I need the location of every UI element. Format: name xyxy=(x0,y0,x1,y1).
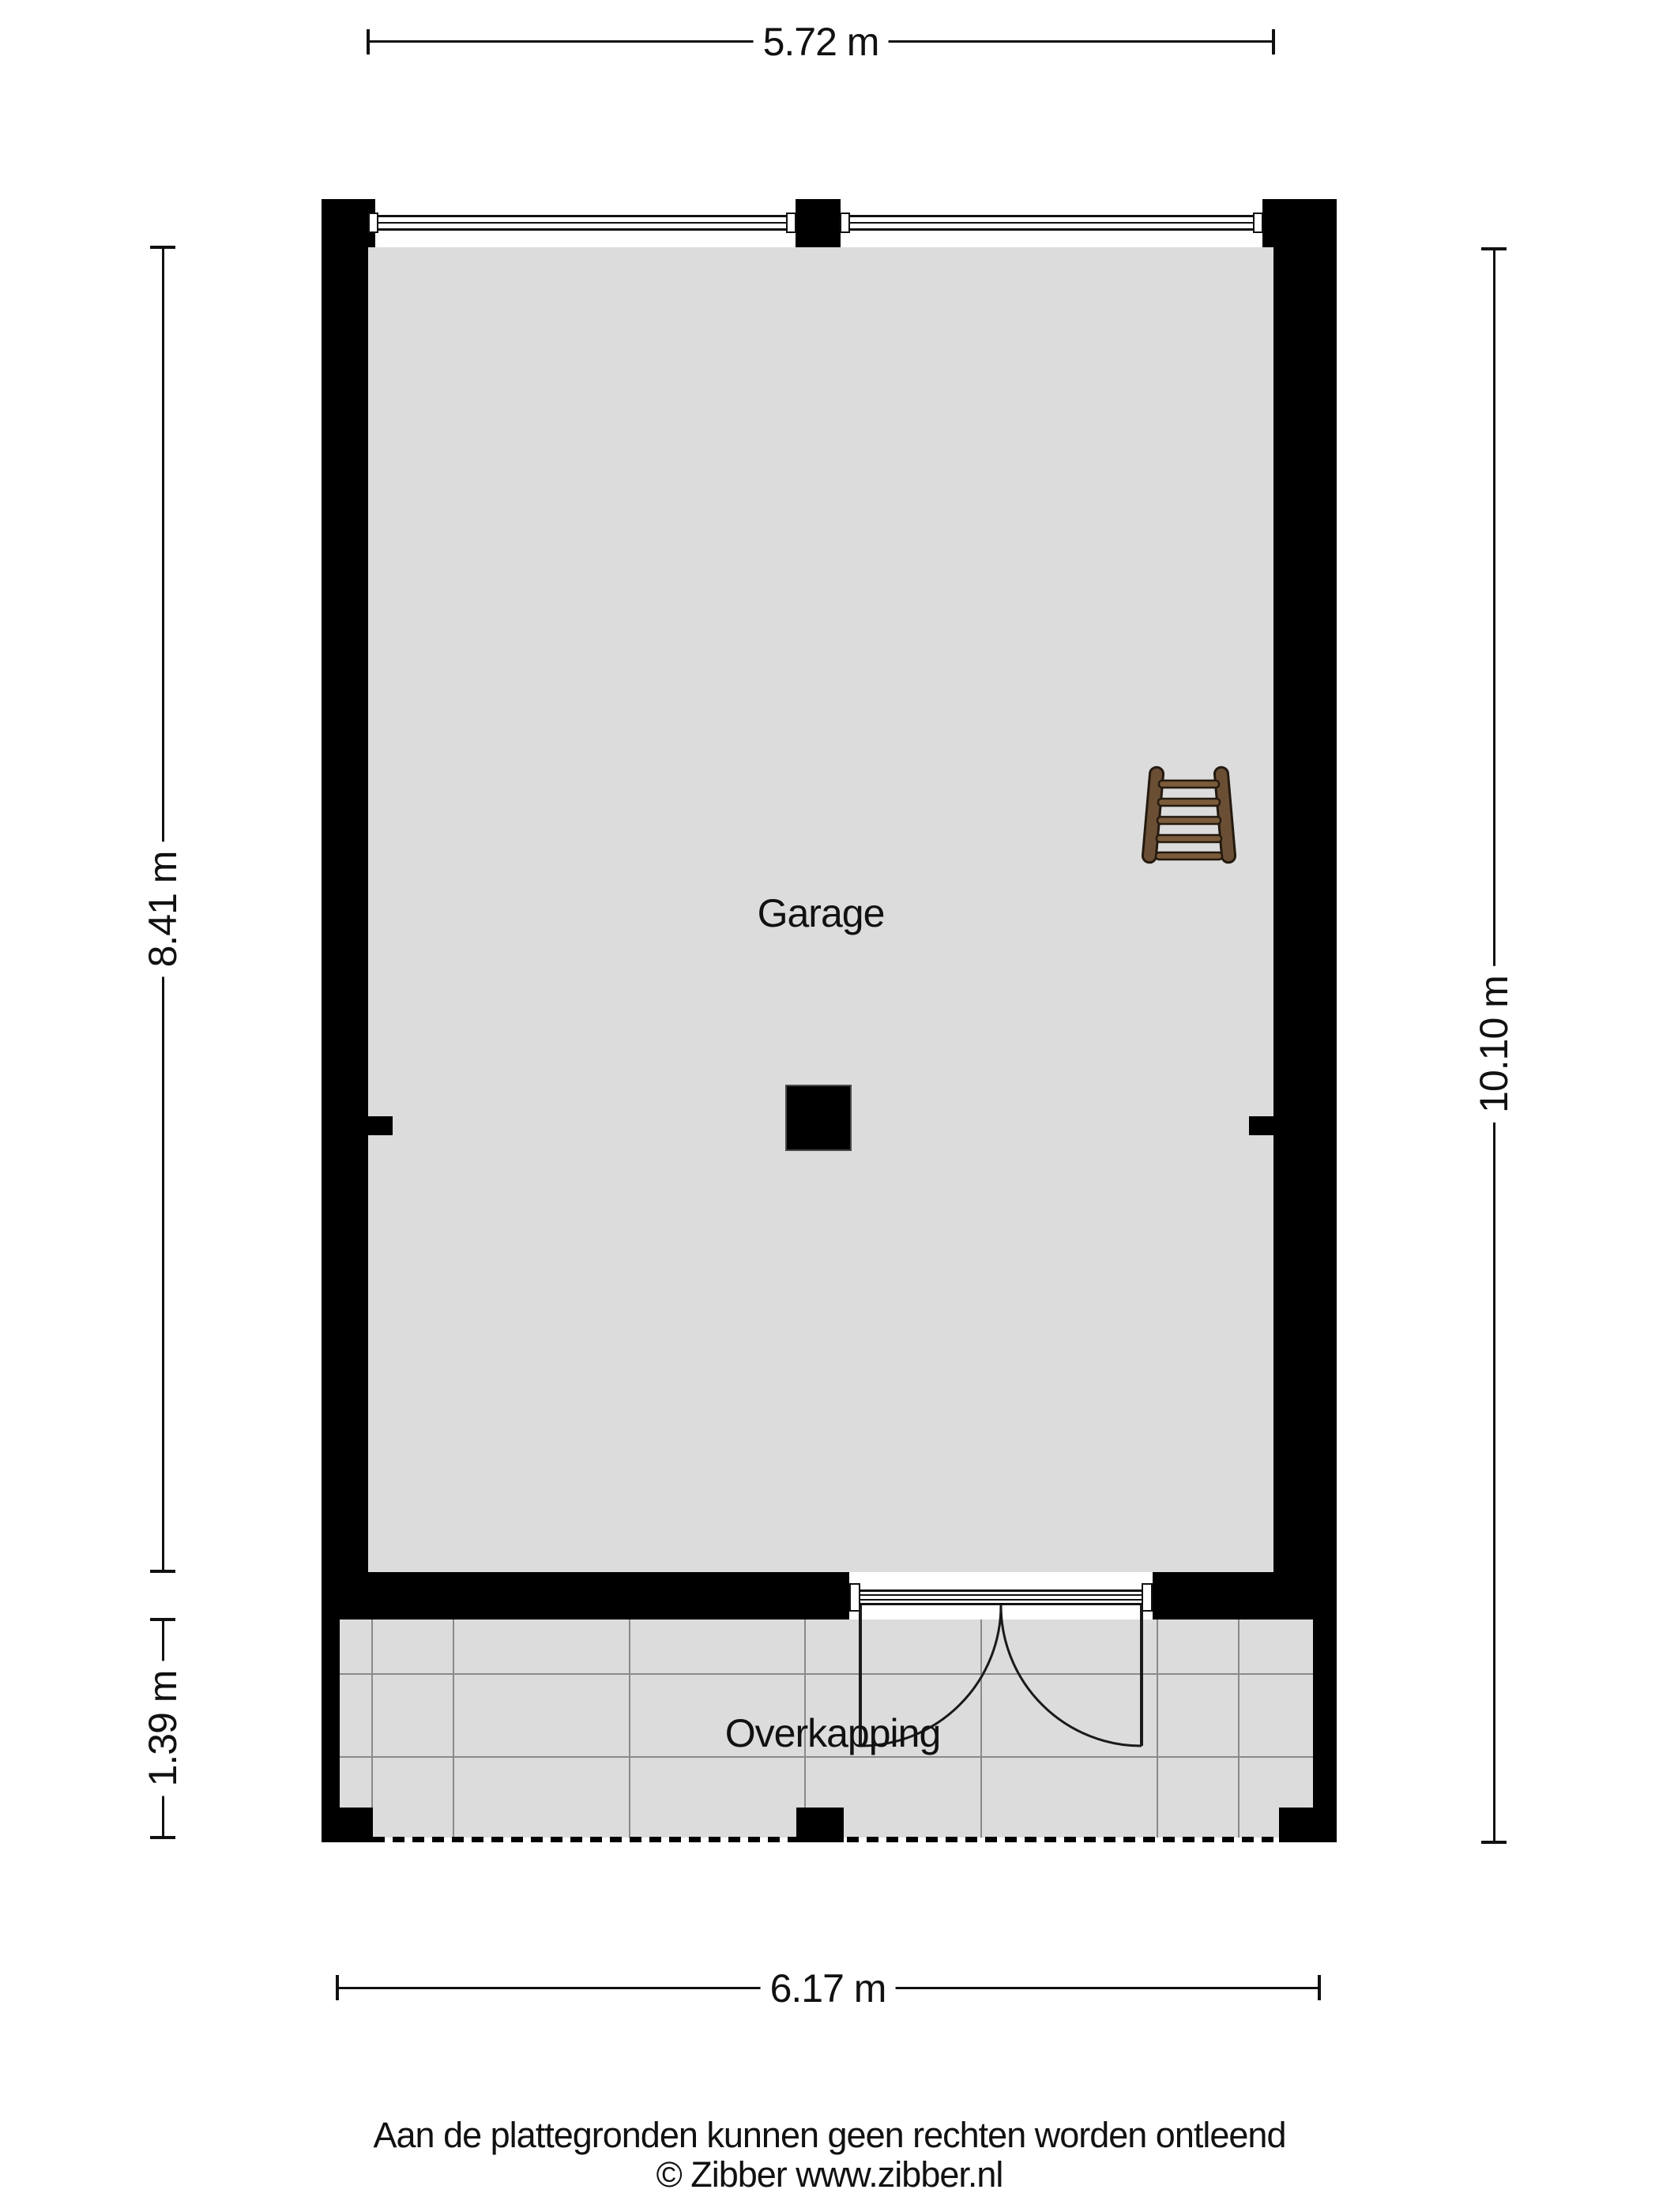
wall-right xyxy=(1273,199,1337,1619)
post-bottom-left xyxy=(322,1808,373,1842)
wall-stub-right xyxy=(1249,1116,1273,1135)
dimension-label-bottom: 6.17 m xyxy=(761,1966,896,2011)
footer-credit: © Zibber www.zibber.nl xyxy=(0,2155,1659,2195)
tile-line xyxy=(371,1619,373,1838)
floorplan-page: 5.72 m 8.41 m 1.39 m 10.10 m 6.17 m xyxy=(0,0,1659,2212)
tile-line xyxy=(340,1673,1313,1675)
overkapping-label: Overkapping xyxy=(725,1710,941,1756)
dimension-tick xyxy=(150,1836,175,1839)
door-glass-line xyxy=(860,1599,1142,1601)
window-glass-line xyxy=(377,222,786,224)
tile-line xyxy=(629,1619,630,1838)
dimension-tick xyxy=(1481,1841,1507,1844)
pier-top-left xyxy=(322,199,375,247)
dimension-tick xyxy=(150,1570,175,1573)
window-end-cap xyxy=(786,213,796,233)
garage-label: Garage xyxy=(758,890,885,936)
window-glass-line xyxy=(849,222,1254,224)
window-top-left xyxy=(377,215,786,231)
wall-left xyxy=(322,199,368,1619)
wall-bottom-left xyxy=(322,1572,849,1619)
dimension-tick xyxy=(367,29,370,55)
dimension-label-right: 10.10 m xyxy=(1471,966,1517,1123)
wall-bottom-right xyxy=(1153,1572,1337,1619)
dimension-tick xyxy=(150,1618,175,1621)
tile-line xyxy=(340,1756,1313,1758)
window-end-cap xyxy=(1253,213,1263,233)
window-end-cap xyxy=(840,213,850,233)
ladder-icon xyxy=(1140,762,1238,869)
open-edge-dashed-line xyxy=(373,1837,1279,1842)
dimension-label-left-upper: 8.41 m xyxy=(140,842,186,977)
footer-disclaimer: Aan de plattegronden kunnen geen rechten… xyxy=(0,2116,1659,2155)
support-pillar xyxy=(785,1085,852,1151)
tile-line xyxy=(1238,1619,1240,1838)
footer: Aan de plattegronden kunnen geen rechten… xyxy=(0,2116,1659,2195)
pier-top-center xyxy=(796,199,841,247)
tile-line xyxy=(1157,1619,1158,1838)
pier-top-right xyxy=(1262,199,1337,247)
wall-stub-left xyxy=(368,1116,393,1135)
dimension-tick xyxy=(336,1975,339,2000)
tile-line xyxy=(453,1619,454,1838)
dimension-tick xyxy=(1318,1975,1321,2000)
dimension-tick xyxy=(1272,29,1275,55)
dimension-label-top: 5.72 m xyxy=(754,19,889,65)
post-bottom-right xyxy=(1279,1808,1337,1842)
door-glass-line xyxy=(860,1594,1142,1596)
dimension-label-left-lower: 1.39 m xyxy=(140,1661,186,1796)
window-end-cap xyxy=(368,213,378,233)
dimension-tick xyxy=(150,246,175,249)
dimension-tick xyxy=(1481,247,1507,250)
window-top-right xyxy=(849,215,1254,231)
